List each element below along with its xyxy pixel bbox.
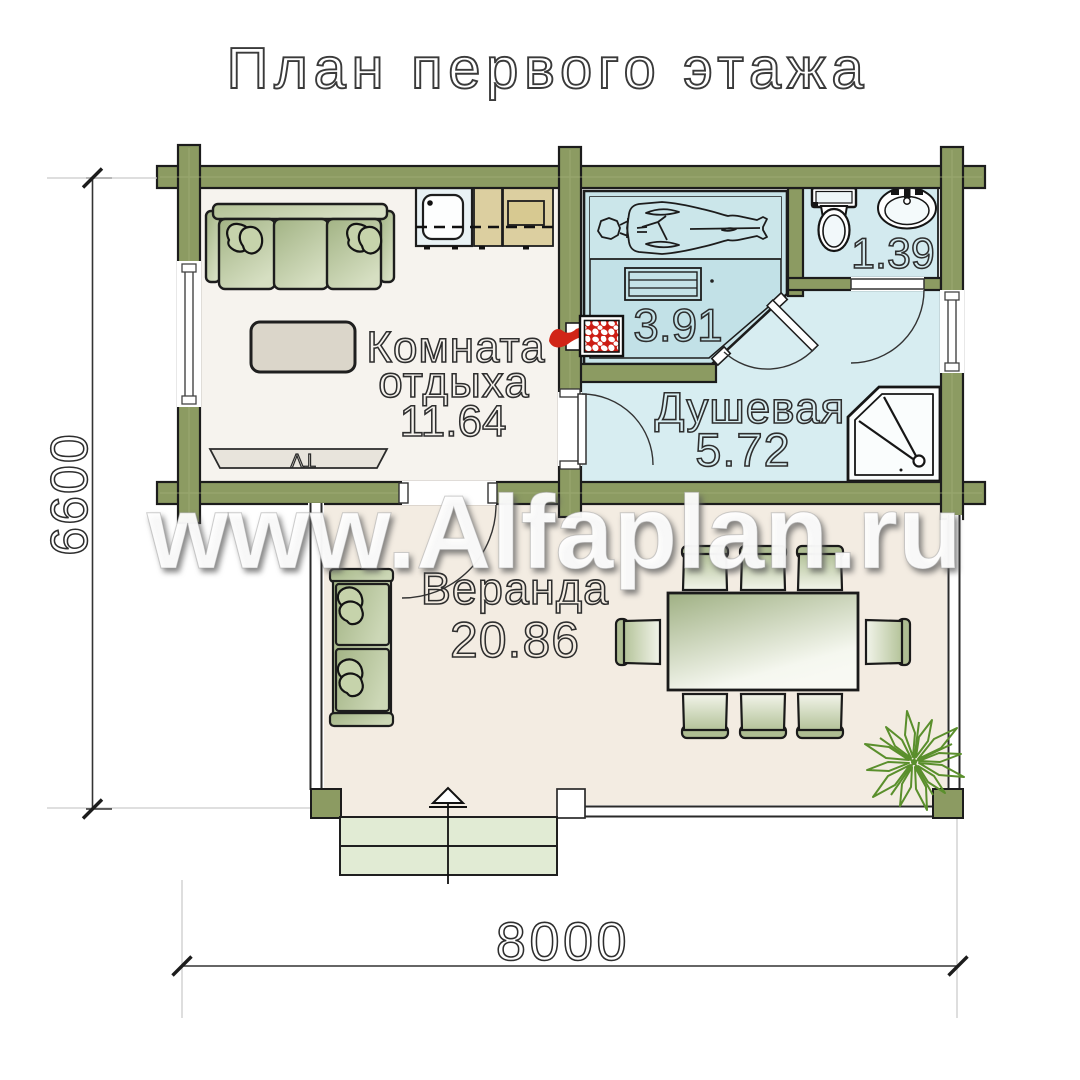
svg-text:6600: 6600 xyxy=(41,432,99,556)
svg-text:План первого этажа: План первого этажа xyxy=(227,36,870,101)
svg-text:11.64: 11.64 xyxy=(400,397,507,446)
svg-text:20.86: 20.86 xyxy=(450,612,580,668)
svg-text:3.91: 3.91 xyxy=(633,299,723,351)
svg-text:1.39: 1.39 xyxy=(851,230,935,278)
svg-text:www.Alfaplan.ru: www.Alfaplan.ru xyxy=(146,474,962,591)
svg-text:TV: TV xyxy=(290,449,316,471)
svg-text:8000: 8000 xyxy=(496,912,630,972)
svg-text:5.72: 5.72 xyxy=(695,423,790,476)
